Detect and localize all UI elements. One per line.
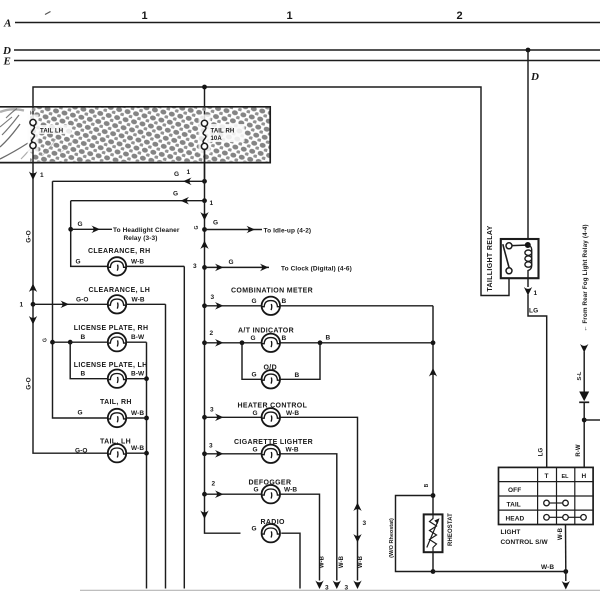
svg-text:1: 1 [40, 172, 44, 179]
svg-text:W-B: W-B [286, 446, 299, 453]
svg-text:G: G [253, 410, 258, 417]
svg-text:G: G [252, 526, 257, 533]
svg-text:G: G [78, 410, 83, 417]
svg-text:W-B: W-B [131, 410, 144, 417]
svg-text:1: 1 [534, 290, 538, 297]
svg-text:LICENSE PLATE, RH: LICENSE PLATE, RH [74, 325, 149, 332]
svg-text:To Idle-up (4-2): To Idle-up (4-2) [264, 227, 312, 234]
svg-text:A/T INDICATOR: A/T INDICATOR [238, 328, 294, 335]
svg-text:3: 3 [210, 407, 214, 414]
svg-text:G: G [174, 171, 179, 178]
svg-text:G-O: G-O [26, 230, 33, 243]
svg-text:G: G [213, 220, 218, 227]
svg-text:To Headlight Cleaner: To Headlight Cleaner [113, 227, 180, 234]
svg-text:CLEARANCE, LH: CLEARANCE, LH [89, 287, 151, 294]
svg-text:Relay (3-3): Relay (3-3) [124, 235, 158, 242]
svg-text:TAIL: TAIL [507, 501, 521, 508]
svg-text:W-B: W-B [339, 555, 345, 568]
svg-text:1: 1 [287, 10, 293, 22]
svg-text:G: G [76, 259, 81, 266]
svg-text:← From Rear Fog Light Relay (4: ← From Rear Fog Light Relay (4-4) [582, 224, 589, 332]
svg-text:G: G [229, 259, 234, 266]
svg-text:W-B: W-B [358, 555, 364, 568]
svg-text:1: 1 [210, 200, 214, 207]
svg-text:3: 3 [193, 263, 197, 270]
svg-text:G: G [194, 225, 200, 229]
svg-text:G-O: G-O [26, 377, 33, 390]
svg-text:3: 3 [211, 294, 215, 301]
svg-text:W-B: W-B [132, 297, 145, 304]
svg-text:H: H [582, 473, 587, 480]
svg-text:(W/O Rheostat): (W/O Rheostat) [389, 518, 395, 558]
svg-text:TAILLIGHT RELAY: TAILLIGHT RELAY [487, 225, 494, 291]
svg-text:B: B [282, 298, 287, 305]
svg-text:B: B [295, 372, 300, 379]
svg-text:3: 3 [209, 443, 213, 450]
svg-text:B: B [81, 370, 86, 377]
svg-text:TAIL LH: TAIL LH [40, 129, 63, 135]
svg-text:2: 2 [457, 10, 463, 22]
svg-text:D: D [530, 71, 539, 83]
svg-text:B-W: B-W [131, 371, 145, 378]
svg-text:W-B: W-B [320, 555, 326, 568]
svg-text:B: B [424, 483, 430, 487]
svg-text:E: E [3, 56, 11, 68]
svg-text:B: B [326, 335, 331, 342]
svg-text:W-B: W-B [284, 487, 297, 494]
svg-text:G: G [252, 372, 257, 379]
svg-text:W-B: W-B [558, 527, 564, 540]
svg-text:LG: LG [539, 448, 545, 457]
svg-text:B: B [282, 335, 287, 342]
svg-text:G-O: G-O [76, 296, 89, 303]
svg-text:CONTROL S/W: CONTROL S/W [501, 539, 549, 546]
svg-text:LICENSE PLATE, LH: LICENSE PLATE, LH [74, 362, 148, 369]
svg-text:EL: EL [562, 474, 570, 480]
svg-text:HEAD: HEAD [506, 515, 525, 522]
svg-text:G: G [251, 335, 256, 342]
svg-text:G: G [43, 338, 49, 342]
svg-text:W-B: W-B [286, 410, 299, 417]
svg-text:R-W: R-W [576, 444, 582, 457]
svg-text:G: G [253, 446, 258, 453]
svg-text:To Clock (Digital) (4-6): To Clock (Digital) (4-6) [281, 265, 352, 272]
svg-text:G: G [173, 191, 178, 198]
svg-text:1: 1 [187, 169, 191, 176]
svg-text:W-B: W-B [541, 564, 554, 571]
svg-text:HEATER CONTROL: HEATER CONTROL [238, 403, 308, 410]
svg-text:CLEARANCE, RH: CLEARANCE, RH [88, 248, 151, 255]
svg-text:T: T [545, 473, 549, 480]
svg-text:2: 2 [210, 330, 214, 337]
svg-text:S-L: S-L [577, 371, 583, 381]
svg-text:W-B: W-B [131, 445, 144, 452]
svg-text:LG: LG [529, 308, 538, 315]
svg-text:B: B [81, 334, 86, 341]
svg-text:2: 2 [212, 481, 216, 488]
svg-text:G: G [254, 487, 259, 494]
svg-text:TAIL RH: TAIL RH [211, 129, 235, 135]
svg-text:1: 1 [20, 302, 24, 309]
svg-text:3: 3 [363, 520, 367, 527]
svg-text:G: G [252, 298, 257, 305]
svg-text:A: A [3, 18, 11, 30]
svg-text:OFF: OFF [508, 487, 521, 494]
svg-text:DEFOGGER: DEFOGGER [249, 480, 292, 487]
svg-text:G-O: G-O [75, 447, 88, 454]
svg-text:RADIO: RADIO [261, 519, 286, 526]
svg-text:G: G [78, 221, 83, 228]
svg-text:TAIL, LH: TAIL, LH [100, 438, 131, 445]
svg-text:TAIL, RH: TAIL, RH [100, 399, 132, 406]
svg-text:10A: 10A [211, 136, 223, 142]
svg-text:O/D: O/D [264, 365, 278, 372]
svg-text:W-B: W-B [131, 259, 144, 266]
svg-text:B-W: B-W [131, 334, 145, 341]
svg-text:1: 1 [142, 10, 148, 22]
svg-text:RHEOSTAT: RHEOSTAT [448, 513, 454, 546]
svg-text:COMBINATION METER: COMBINATION METER [231, 288, 313, 295]
svg-text:CIGARETTE LIGHTER: CIGARETTE LIGHTER [234, 439, 313, 446]
svg-text:LIGHT: LIGHT [501, 529, 521, 536]
